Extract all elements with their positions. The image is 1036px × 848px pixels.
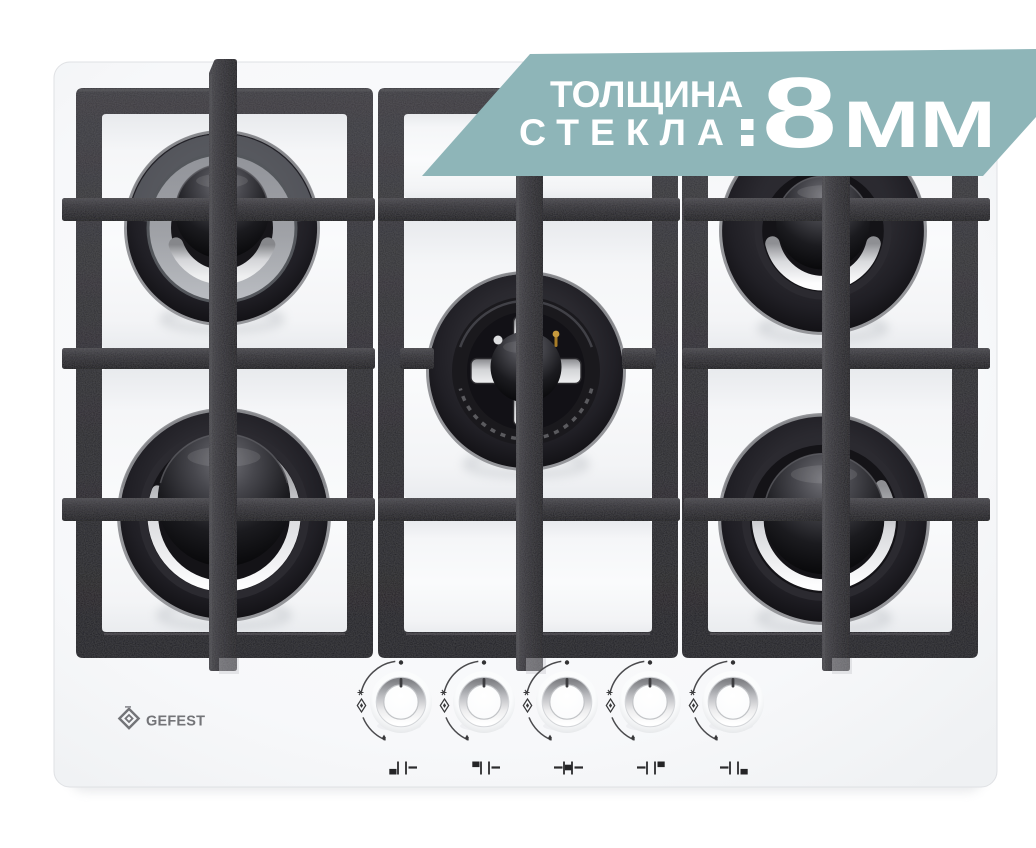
svg-text:GEFEST: GEFEST — [146, 714, 205, 730]
svg-text:ММ: ММ — [843, 87, 996, 161]
svg-text:ТОЛЩИНА: ТОЛЩИНА — [550, 74, 743, 115]
svg-text:8: 8 — [762, 57, 837, 169]
